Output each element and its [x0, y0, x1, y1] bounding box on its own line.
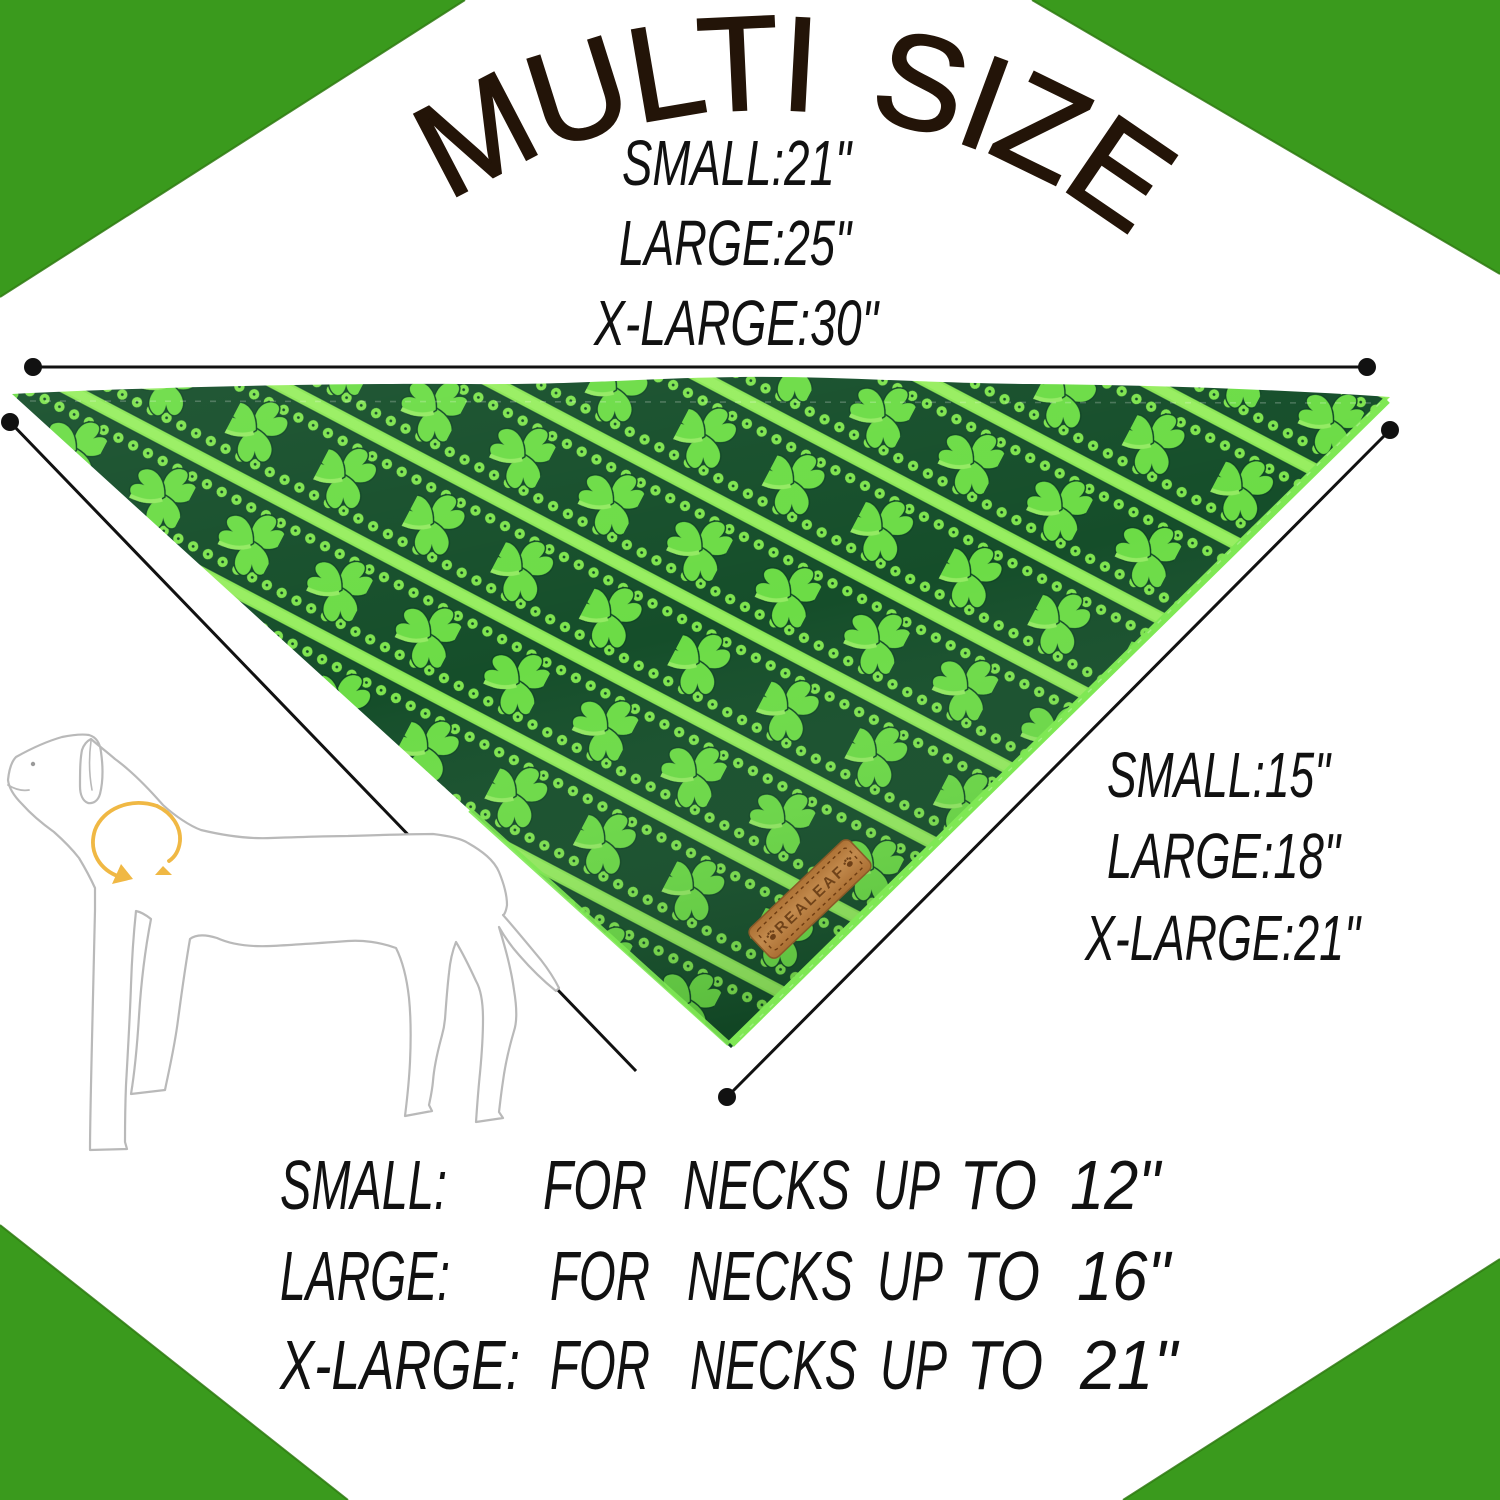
svg-text:SMALL:: SMALL: — [280, 1146, 447, 1224]
svg-text:TO: TO — [960, 1146, 1037, 1224]
svg-text:NECKS: NECKS — [687, 1237, 853, 1315]
svg-text:NECKS: NECKS — [683, 1146, 850, 1224]
svg-text:LARGE:25": LARGE:25" — [619, 207, 853, 279]
svg-text:FOR: FOR — [550, 1326, 650, 1404]
svg-text:NECKS: NECKS — [690, 1326, 857, 1404]
svg-text:X-LARGE:: X-LARGE: — [279, 1326, 520, 1404]
svg-text:21": 21" — [1079, 1326, 1180, 1404]
svg-text:SMALL:21": SMALL:21" — [622, 127, 853, 199]
svg-text:X-LARGE:21": X-LARGE:21" — [1084, 902, 1363, 974]
svg-text:TO: TO — [963, 1237, 1040, 1315]
svg-text:16": 16" — [1077, 1237, 1173, 1315]
svg-text:X-LARGE:30": X-LARGE:30" — [593, 287, 881, 359]
svg-text:FOR: FOR — [543, 1146, 647, 1224]
svg-text:SMALL:15": SMALL:15" — [1107, 739, 1332, 811]
svg-text:UP: UP — [877, 1237, 943, 1315]
svg-text:LARGE:: LARGE: — [280, 1237, 450, 1315]
svg-text:FOR: FOR — [550, 1237, 650, 1315]
svg-text:12": 12" — [1070, 1146, 1163, 1224]
svg-text:LARGE:18": LARGE:18" — [1107, 820, 1342, 892]
svg-text:UP: UP — [873, 1146, 940, 1224]
svg-text:UP: UP — [880, 1326, 947, 1404]
svg-text:TO: TO — [967, 1326, 1043, 1404]
